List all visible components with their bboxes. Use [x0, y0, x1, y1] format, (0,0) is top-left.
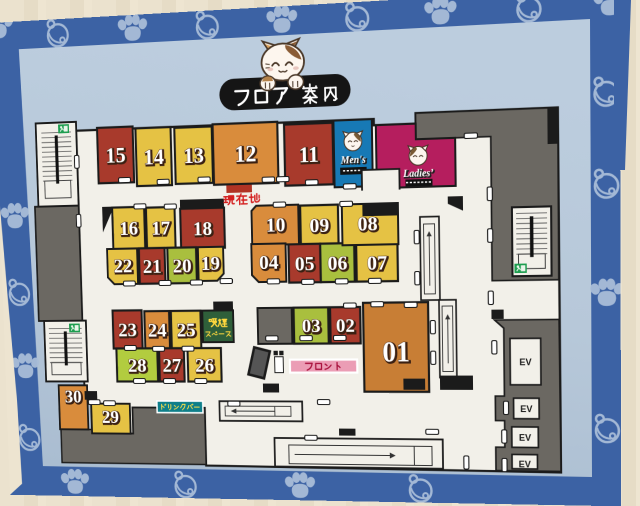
svg-text:05: 05 [295, 253, 315, 276]
svg-text:27: 27 [162, 355, 182, 377]
svg-text:11: 11 [298, 143, 319, 168]
svg-text:24: 24 [148, 320, 168, 342]
svg-text:EV: EV [519, 356, 532, 367]
svg-text:25: 25 [176, 320, 195, 342]
svg-text:30: 30 [64, 386, 82, 406]
svg-text:20: 20 [172, 255, 192, 277]
svg-text:26: 26 [195, 355, 215, 377]
svg-text:23: 23 [118, 320, 137, 342]
svg-text:07: 07 [367, 252, 388, 275]
svg-text:04: 04 [259, 252, 279, 275]
svg-text:02: 02 [336, 315, 355, 337]
svg-text:22: 22 [113, 255, 132, 277]
svg-text:09: 09 [309, 214, 329, 237]
svg-text:13: 13 [183, 144, 204, 168]
svg-text:Men's: Men's [340, 155, 367, 167]
svg-text:16: 16 [119, 218, 139, 240]
svg-text:21: 21 [142, 256, 161, 278]
svg-text:03: 03 [302, 315, 321, 337]
svg-text:EV: EV [520, 403, 533, 414]
svg-text:15: 15 [105, 144, 126, 168]
svg-text:Ladies’: Ladies’ [402, 168, 434, 180]
svg-text:14: 14 [143, 146, 164, 170]
svg-text:06: 06 [327, 252, 348, 275]
svg-text:29: 29 [102, 406, 120, 427]
svg-text:18: 18 [193, 218, 213, 241]
svg-text:19: 19 [201, 253, 221, 276]
svg-text:01: 01 [382, 337, 410, 368]
svg-text:EV: EV [519, 459, 532, 470]
svg-text:28: 28 [128, 355, 147, 377]
svg-text:17: 17 [151, 217, 171, 240]
svg-text:12: 12 [234, 141, 256, 168]
svg-text:10: 10 [266, 214, 286, 237]
svg-text:EV: EV [519, 432, 532, 443]
svg-text:08: 08 [357, 213, 377, 236]
